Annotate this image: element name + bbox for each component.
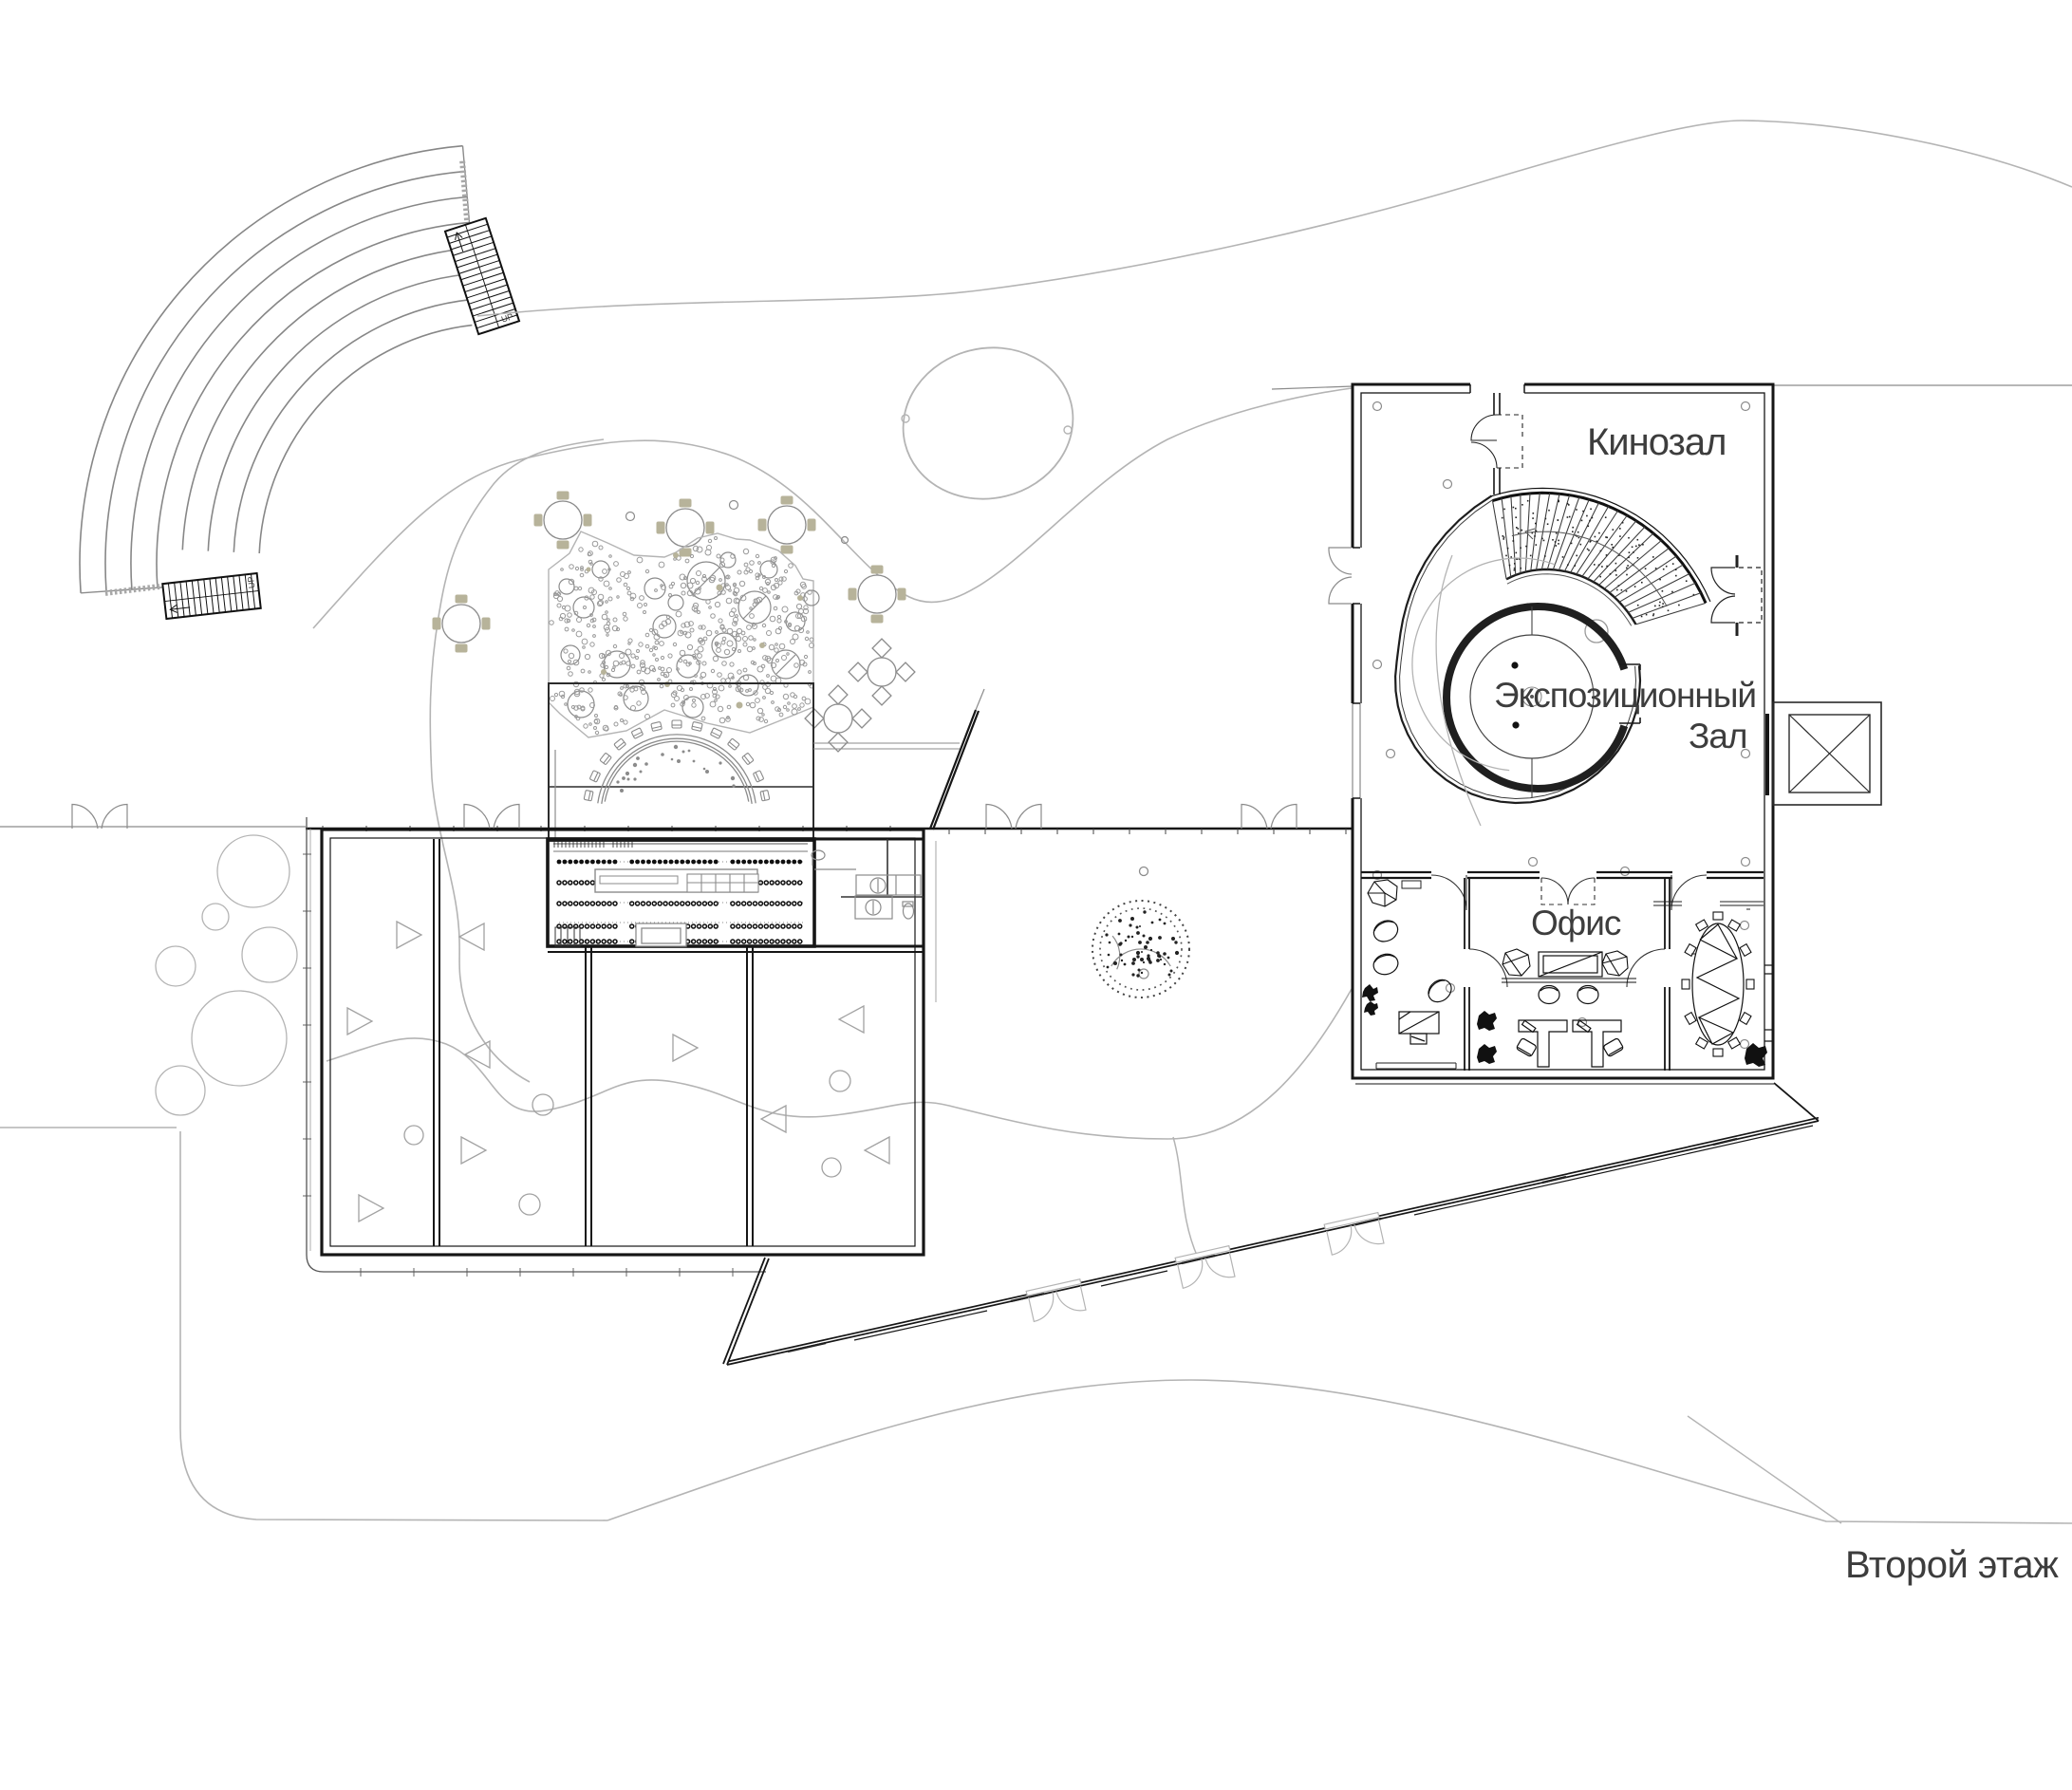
svg-text:Второй этаж: Второй этаж (1845, 1544, 2059, 1586)
svg-text:UP: UP (246, 576, 256, 589)
svg-text:Экспозиционный: Экспозиционный (1494, 676, 1756, 715)
svg-text:Зал: Зал (1689, 717, 1747, 755)
svg-text:Офис: Офис (1531, 904, 1621, 942)
svg-text:Кинозал: Кинозал (1587, 421, 1726, 463)
